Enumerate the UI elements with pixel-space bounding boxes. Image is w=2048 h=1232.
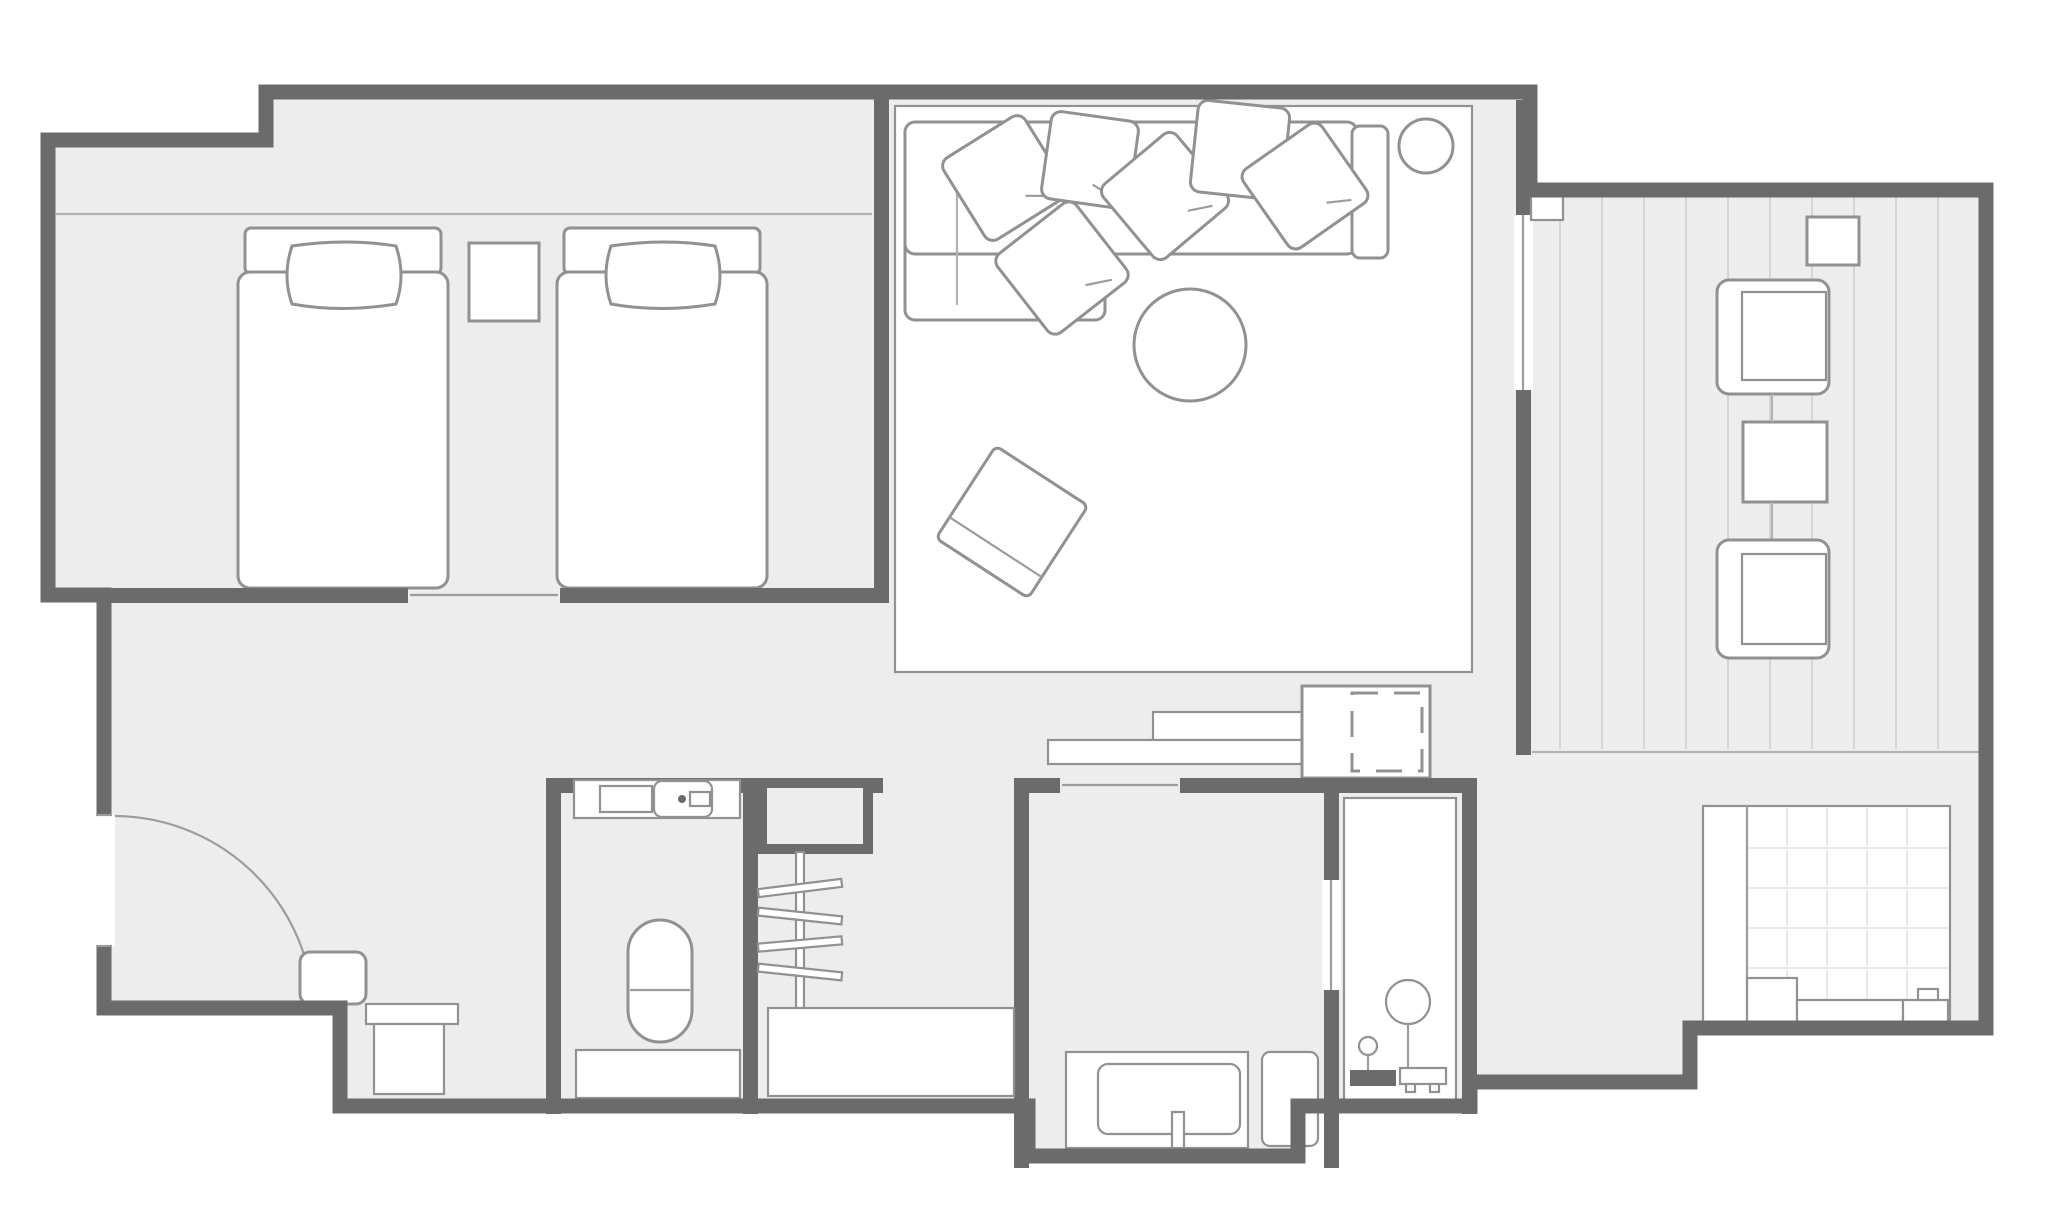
bathroom xyxy=(1703,806,1950,1028)
faucet-dot xyxy=(678,795,686,803)
tub-faucet-bump xyxy=(1918,989,1938,1000)
shower-floor xyxy=(1344,798,1456,1104)
round-pouf xyxy=(1134,289,1246,401)
minifridge-dashed xyxy=(1352,693,1422,771)
bed-1 xyxy=(238,228,448,588)
tv-board-upper xyxy=(1153,712,1302,740)
wall-shower-right xyxy=(1462,778,1477,1114)
toilet-vanity xyxy=(574,780,740,818)
balcony-side-table xyxy=(1807,217,1859,265)
wall-bedroom-hall-left xyxy=(97,588,408,603)
floor-lamp xyxy=(1399,119,1453,173)
entrance-opening-cut xyxy=(93,815,115,946)
wall-toilet-closet xyxy=(743,778,758,1114)
toilet-lower-shelf xyxy=(576,1050,740,1098)
nightstand xyxy=(469,243,539,321)
balcony-threshold-step xyxy=(1531,196,1563,220)
luggage-board xyxy=(768,1008,1014,1096)
luggage-bench xyxy=(366,1004,458,1094)
closet-nook xyxy=(762,783,868,849)
drain-base xyxy=(1350,1070,1396,1086)
hand-shower-knob xyxy=(1359,1037,1377,1055)
toilet xyxy=(628,920,692,1042)
basin-faucet xyxy=(1172,1112,1184,1148)
wall-bedroom-hall-right xyxy=(560,588,889,603)
appliance-cabinet xyxy=(1302,686,1430,778)
bed-2 xyxy=(557,228,767,588)
faucet-spout xyxy=(690,792,710,806)
rain-shower-head xyxy=(1386,980,1430,1024)
wall-toilet-left xyxy=(546,778,561,1114)
bed-2-pillow xyxy=(606,242,720,309)
shower-room xyxy=(1344,798,1456,1104)
tv-board-lower xyxy=(1048,740,1302,764)
washbasin-room xyxy=(1066,1052,1318,1148)
shoe-stool xyxy=(300,952,366,1004)
bed-2-mattress xyxy=(557,272,767,588)
wash-basin xyxy=(1098,1064,1240,1134)
panel-foot-1 xyxy=(1406,1084,1415,1092)
floor-plan-canvas xyxy=(0,0,2048,1232)
shower-panel xyxy=(1400,1068,1446,1084)
bed-1-pillow xyxy=(287,242,401,309)
floor-plan-svg xyxy=(0,0,2048,1232)
sink-basin xyxy=(600,786,652,812)
panel-foot-2 xyxy=(1430,1084,1439,1092)
bedroom-living-wall xyxy=(874,98,889,598)
deck-table xyxy=(1743,422,1827,502)
bed-1-mattress xyxy=(238,272,448,588)
deck-chair-1 xyxy=(1717,280,1829,394)
deck-chair-2 xyxy=(1717,540,1829,658)
living-balcony-wall xyxy=(1516,100,1531,755)
